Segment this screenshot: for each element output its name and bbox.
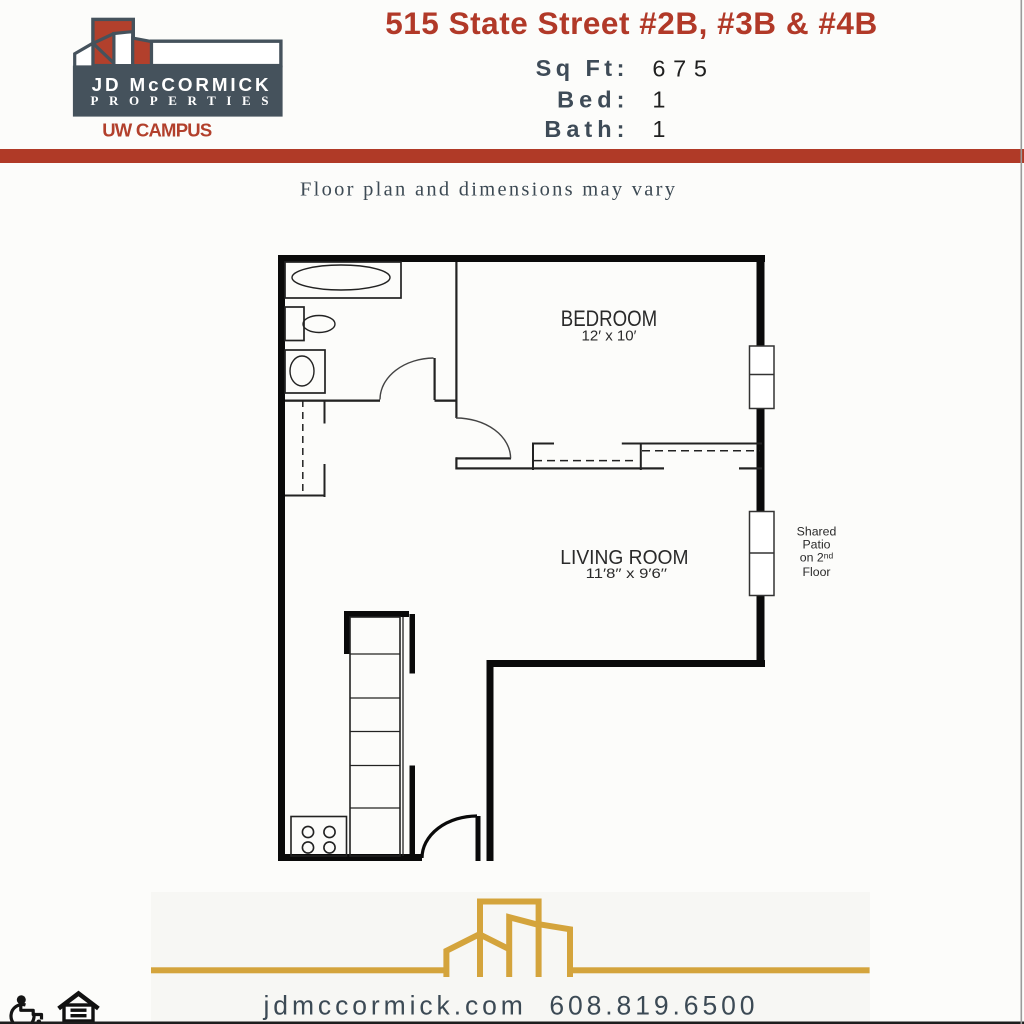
svg-text:12′ x 10′: 12′ x 10′	[582, 328, 637, 344]
svg-text:11′8′′ x 9′6′′: 11′8′′ x 9′6′′	[586, 566, 668, 581]
svg-text:JD McCORMICK: JD McCORMICK	[92, 74, 269, 95]
svg-text:on 2nd: on 2nd	[800, 551, 834, 565]
svg-text:BEDROOM: BEDROOM	[561, 306, 657, 331]
svg-text:515 State Street #2B, #3B & #4: 515 State Street #2B, #3B & #4B	[385, 5, 877, 41]
svg-text:Floor plan and dimensions may: Floor plan and dimensions may vary	[300, 179, 676, 201]
svg-text:Patio: Patio	[802, 538, 830, 552]
svg-text:jdmccormick.com 608.819.6500: jdmccormick.com 608.819.6500	[263, 991, 755, 1021]
svg-text:Sq Ft:: Sq Ft:	[536, 55, 625, 81]
svg-text:Bath:: Bath:	[544, 116, 624, 142]
svg-text:Floor: Floor	[802, 565, 830, 579]
svg-text:UW CAMPUS: UW CAMPUS	[102, 120, 212, 141]
svg-text:1: 1	[652, 116, 665, 142]
svg-text:Bed:: Bed:	[557, 86, 624, 112]
svg-text:675: 675	[652, 56, 707, 82]
svg-text:1: 1	[652, 87, 665, 113]
svg-text:Shared: Shared	[797, 524, 837, 538]
